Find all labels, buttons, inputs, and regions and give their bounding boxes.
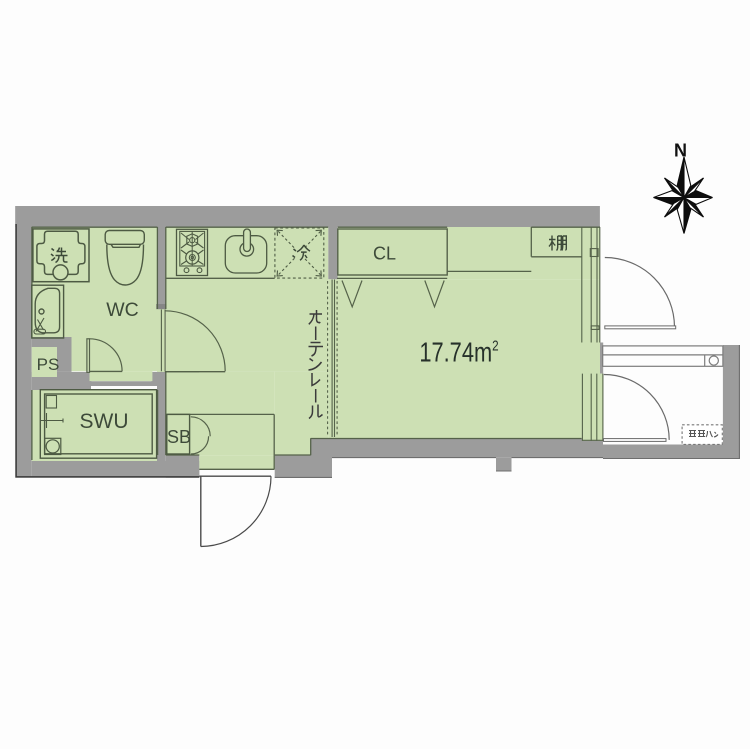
svg-text:PS: PS xyxy=(37,355,60,374)
svg-text:SB: SB xyxy=(167,427,191,447)
svg-text:CL: CL xyxy=(373,244,396,264)
svg-text:N: N xyxy=(674,141,687,161)
svg-text:17.74m2: 17.74m2 xyxy=(419,337,498,368)
svg-text:SWU: SWU xyxy=(80,410,129,433)
svg-text:WC: WC xyxy=(106,299,139,321)
